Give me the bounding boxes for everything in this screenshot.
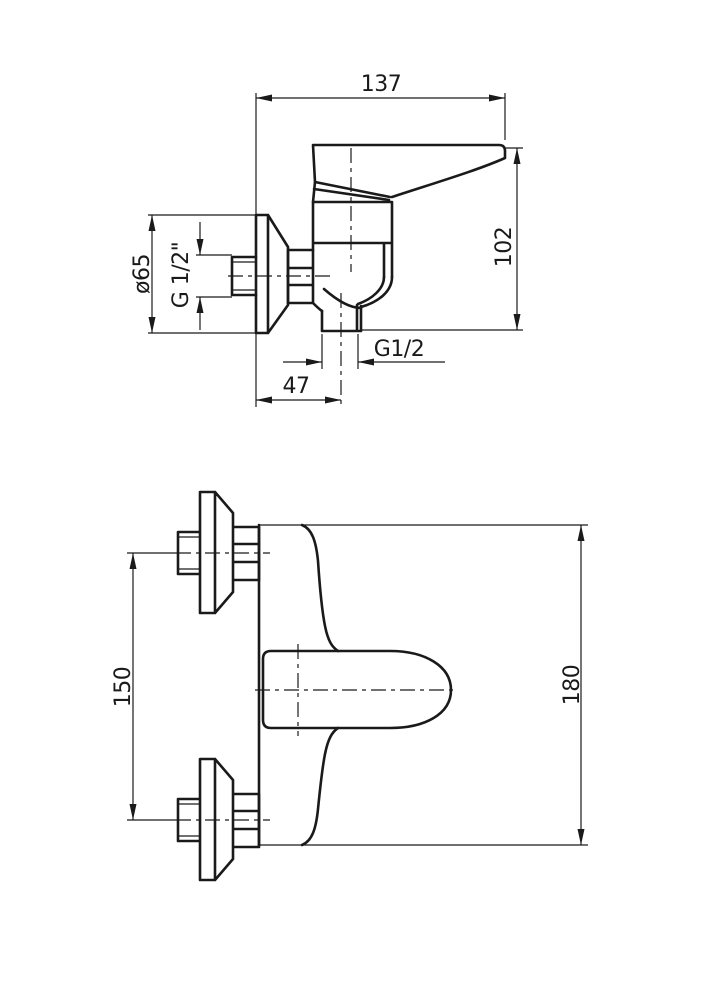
arrowhead <box>197 239 204 255</box>
dim-label-width-137: 137 <box>361 72 402 97</box>
arrowhead <box>130 553 137 569</box>
plan-nipple-threads <box>178 537 200 836</box>
arrowhead <box>578 525 585 541</box>
arrowhead <box>149 317 156 333</box>
plan-view-outline <box>178 492 451 880</box>
dim-label-outlet-offset-47: 47 <box>283 374 310 399</box>
arrowhead <box>514 148 521 164</box>
arrowhead <box>306 359 322 366</box>
dimension-arrowheads <box>130 95 585 846</box>
arrowhead <box>149 215 156 231</box>
arrowhead <box>256 397 272 404</box>
ext-d65 <box>148 215 256 333</box>
side-body-underside <box>313 277 392 311</box>
arrowhead <box>197 297 204 313</box>
arrowhead <box>325 397 341 404</box>
side-lever-handle <box>313 145 505 197</box>
dimension-labels: 137 102 ø65 G 1/2" 47 G1/2 150 180 <box>111 72 585 707</box>
dim-label-height-102: 102 <box>492 227 517 268</box>
dimension-lines <box>127 93 588 845</box>
plan-view-thread-lines <box>178 537 200 836</box>
shower-mixer-dimension-drawing: 137 102 ø65 G 1/2" 47 G1/2 150 180 <box>0 0 707 1000</box>
arrowhead <box>358 359 374 366</box>
dim-label-connection-spacing-150: 150 <box>111 667 136 708</box>
ext-g12-outlet <box>322 334 358 369</box>
dim-label-outlet-thread: G1/2 <box>374 337 424 362</box>
ext-180 <box>259 525 588 845</box>
dim-label-flange-diameter: ø65 <box>130 254 155 294</box>
centerlines <box>176 148 456 820</box>
dim-label-overall-width-180: 180 <box>560 665 585 706</box>
side-wall-escutcheon <box>256 215 288 333</box>
arrowhead <box>489 95 505 102</box>
technical-drawing-page: 137 102 ø65 G 1/2" 47 G1/2 150 180 <box>0 0 707 1000</box>
side-view-outline <box>232 145 505 333</box>
dim-label-wall-thread: G 1/2" <box>169 242 194 309</box>
arrowhead <box>256 95 272 102</box>
side-cartridge-body <box>313 202 392 277</box>
arrowhead <box>130 804 137 820</box>
arrowhead <box>578 829 585 845</box>
arrowhead <box>514 314 521 330</box>
ext-g12-wall <box>196 255 232 297</box>
